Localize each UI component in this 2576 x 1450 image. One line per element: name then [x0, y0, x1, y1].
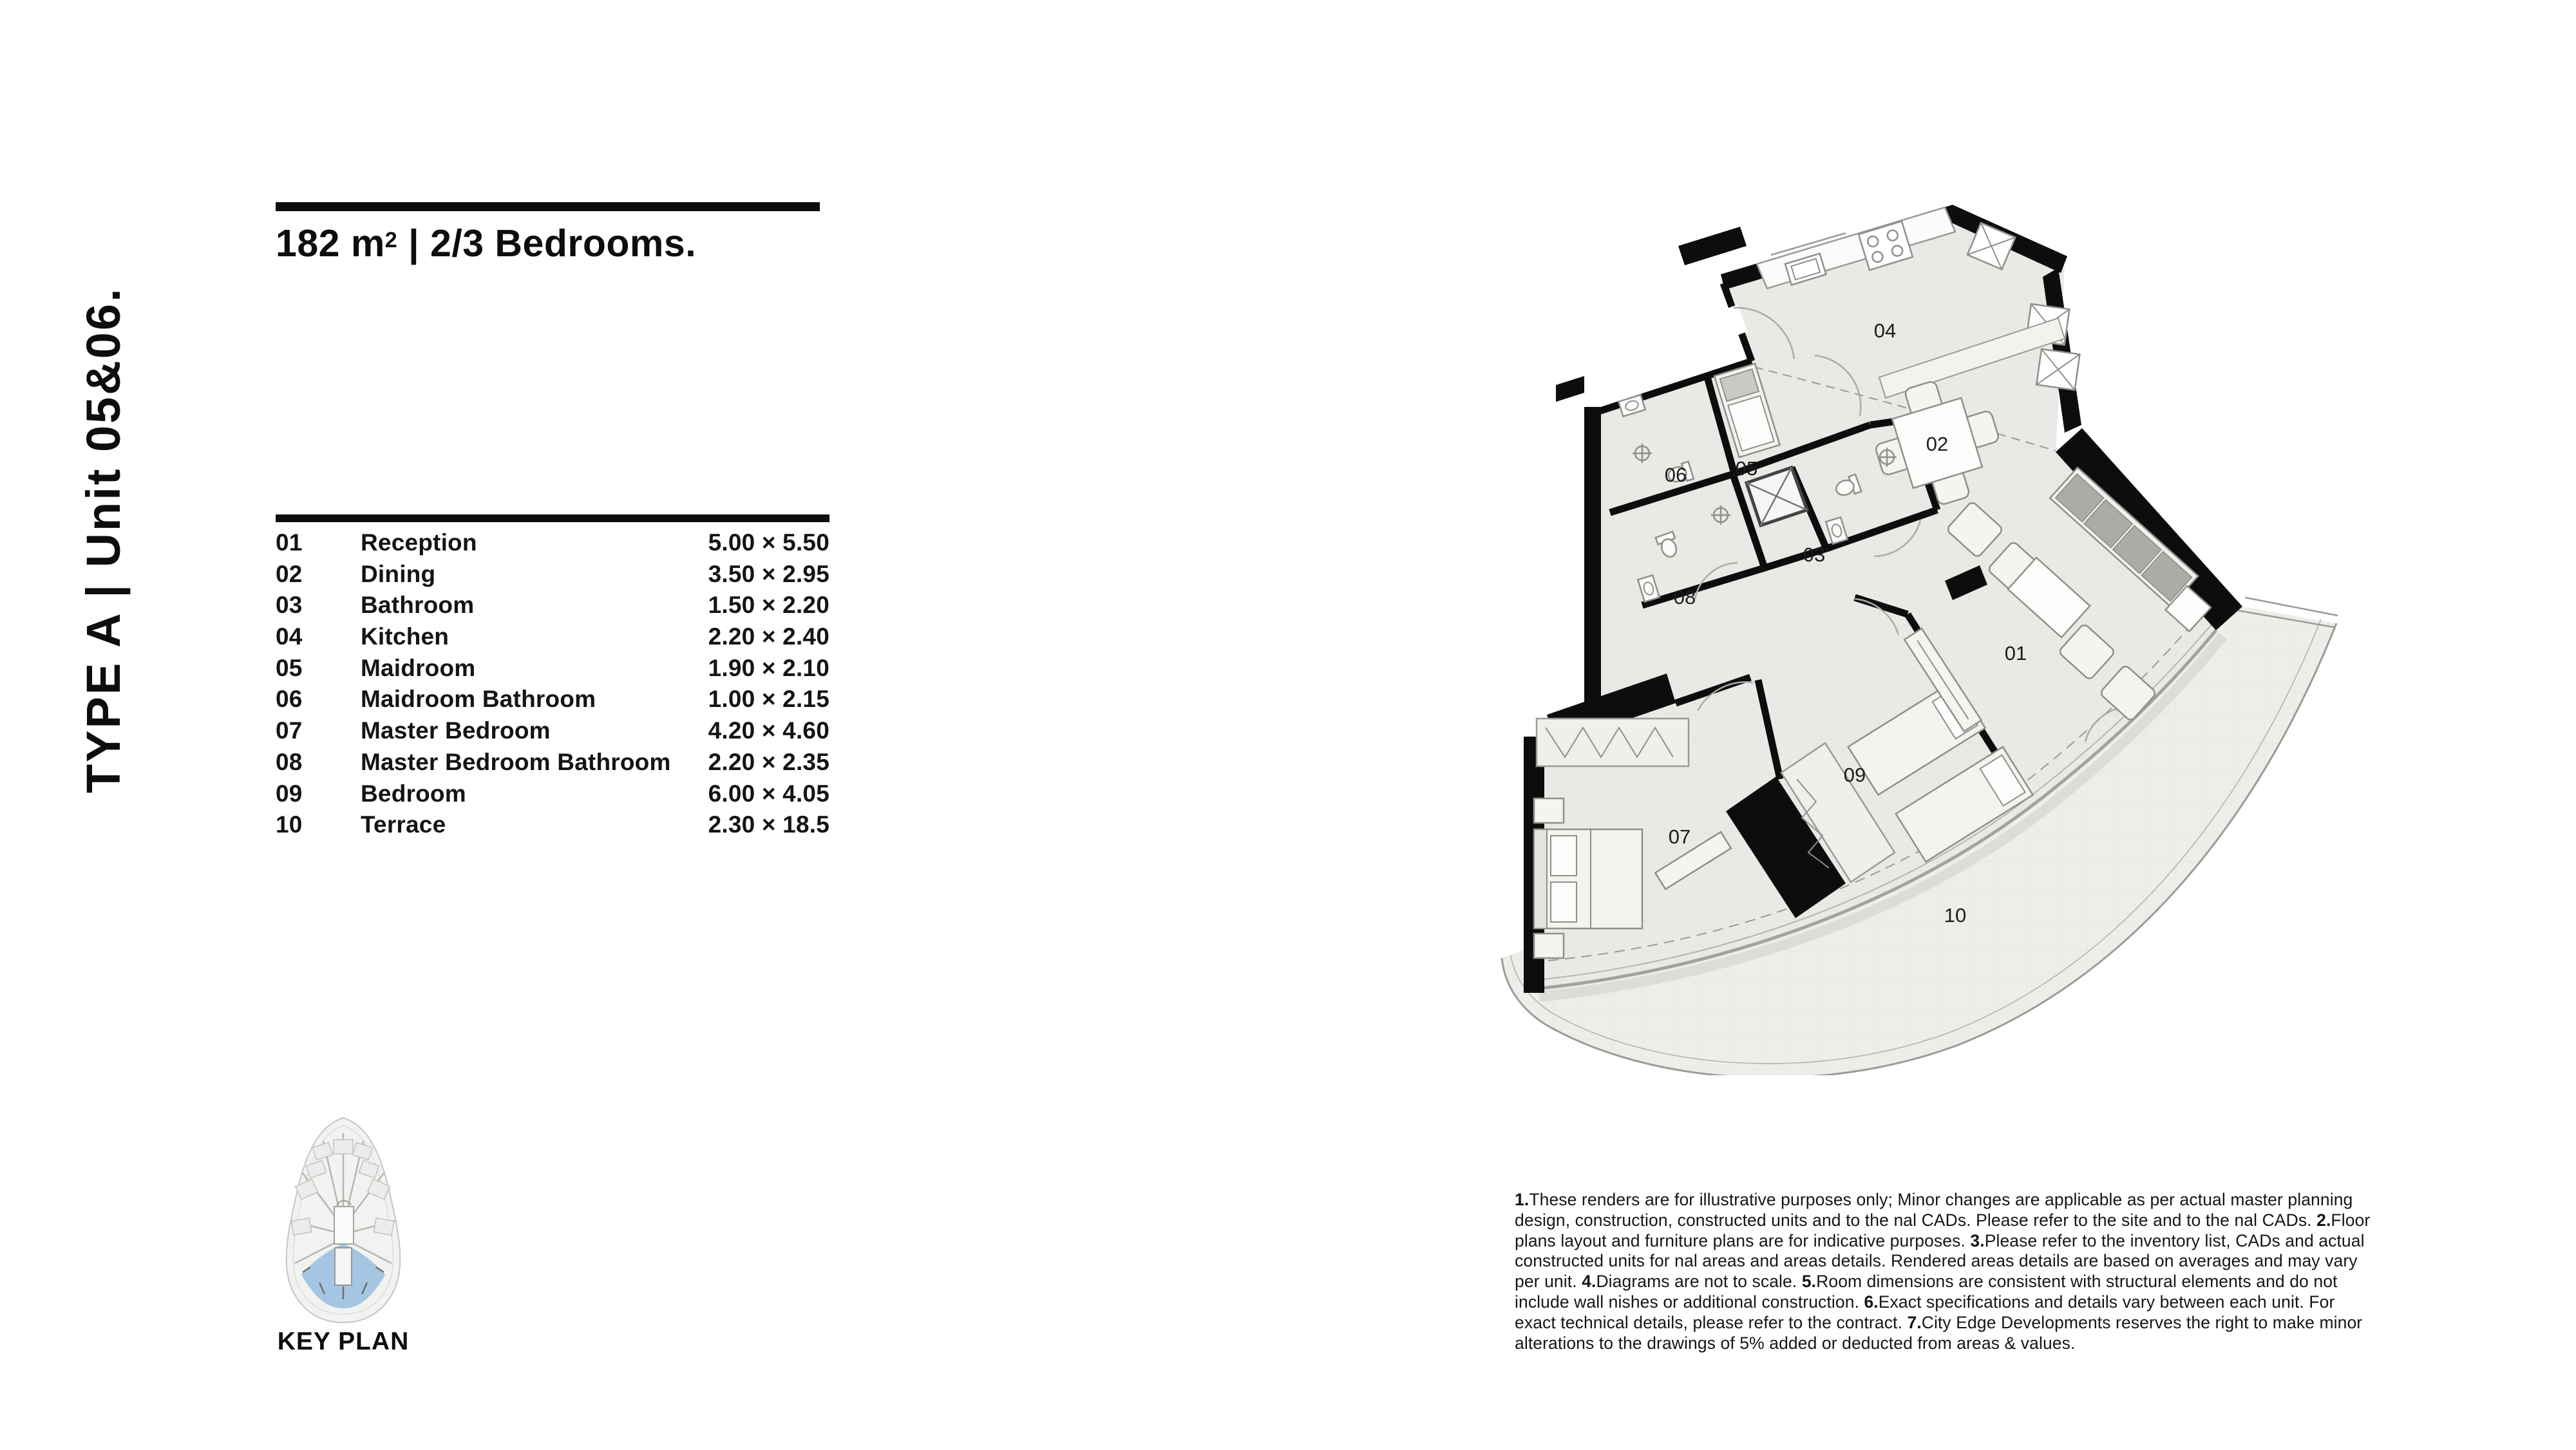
room-label-06: 06 — [1665, 464, 1687, 486]
table-row: 06Maidroom Bathroom1.00 × 2.15 — [276, 686, 829, 717]
keyplan-core — [334, 1207, 354, 1244]
wall-cluster-left — [1584, 407, 1601, 712]
double-bed — [1534, 829, 1642, 928]
bedrooms-label: | 2/3 Bedrooms. — [397, 222, 696, 265]
table-row: 05Maidroom1.90 × 2.10 — [276, 655, 829, 686]
unit-area-title: 182 m2 | 2/3 Bedrooms. — [276, 221, 696, 265]
wall-left-fragment — [1556, 376, 1584, 402]
appliance-box — [2036, 349, 2079, 390]
room-label-04: 04 — [1874, 319, 1896, 342]
room-label-07: 07 — [1669, 825, 1690, 848]
room-label-08: 08 — [1674, 586, 1696, 608]
disclaimer-text: 1.These renders are for illustrative pur… — [1515, 1190, 2375, 1353]
table-row: 07Master Bedroom4.20 × 4.60 — [276, 717, 829, 749]
header-rule — [276, 202, 820, 211]
table-row: 08Master Bedroom Bathroom2.20 × 2.35 — [276, 749, 829, 780]
room-label-10: 10 — [1944, 904, 1966, 927]
table-rule — [276, 514, 829, 522]
nightstand — [1534, 934, 1564, 958]
table-row: 04Kitchen2.20 × 2.40 — [276, 623, 829, 655]
area-value: 182 m — [276, 222, 385, 265]
wall-core-fragment — [1678, 227, 1747, 265]
room-label-05: 05 — [1736, 457, 1757, 480]
room-label-09: 09 — [1844, 764, 1866, 786]
table-row: 02Dining3.50 × 2.95 — [276, 561, 829, 592]
brochure-sheet: TYPE A | Unit 05&06. 182 m2 | 2/3 Bedroo… — [0, 0, 2576, 1450]
disclaimer-item: 4.Diagrams are not to scale. — [1582, 1272, 1802, 1291]
table-row: 09Bedroom6.00 × 4.05 — [276, 780, 829, 812]
room-label-01: 01 — [2005, 642, 2027, 664]
table-row: 10Terrace2.30 × 18.5 — [276, 811, 829, 843]
nightstand — [1534, 798, 1564, 823]
keyplan-core-stub — [335, 1248, 352, 1285]
room-dimension-table: 01Reception5.00 × 5.50 02Dining3.50 × 2.… — [276, 529, 829, 843]
area-superscript: 2 — [385, 228, 397, 252]
table-row: 03Bathroom1.50 × 2.20 — [276, 592, 829, 623]
wardrobe-07 — [1537, 719, 1689, 766]
room-label-02: 02 — [1926, 433, 1948, 455]
disclaimer-item: 1.These renders are for illustrative pur… — [1515, 1190, 2353, 1230]
table-row: 01Reception5.00 × 5.50 — [276, 529, 829, 561]
key-plan-label: KEY PLAN — [250, 1328, 437, 1356]
room-label-03: 03 — [1803, 543, 1825, 566]
page-title-vertical: TYPE A | Unit 05&06. — [76, 201, 160, 793]
floor-plan: 01 02 03 04 05 06 07 08 09 10 — [1494, 180, 2357, 1075]
key-plan-diagram — [269, 1111, 417, 1330]
